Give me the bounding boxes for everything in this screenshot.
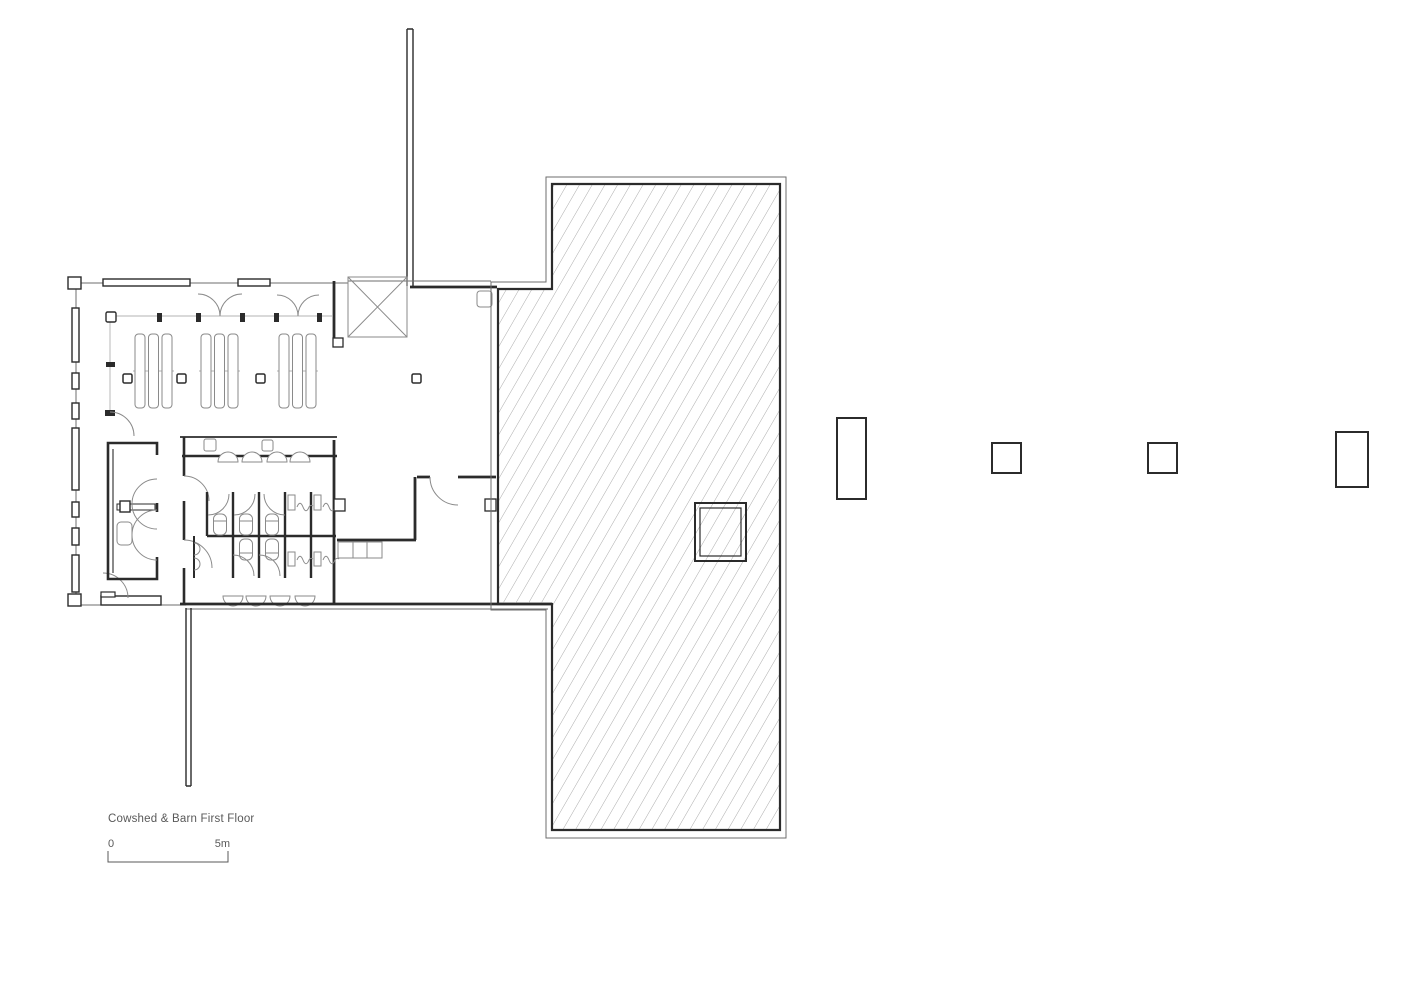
floor-plan-sheet: Cowshed & Barn First Floor 0 5m xyxy=(0,0,1416,1000)
flue-wall-top xyxy=(407,29,413,286)
showers-top xyxy=(288,495,339,511)
scale-zero-label: 0 xyxy=(108,838,114,850)
corner-pier xyxy=(68,594,81,606)
post-column-2 xyxy=(992,443,1021,473)
vestibule xyxy=(108,443,157,579)
floor-plan-drawing: Cowshed & Barn First Floor 0 5m xyxy=(0,0,1416,1000)
double-door-swings xyxy=(198,294,319,316)
table-group-2 xyxy=(199,334,240,408)
showers-bottom xyxy=(288,552,339,566)
scale-max-label: 5m xyxy=(215,838,230,850)
shower-curtain-squiggle xyxy=(323,556,339,564)
flue-wall-bottom xyxy=(186,608,191,786)
door-swing-arc xyxy=(184,476,209,501)
title-block: Cowshed & Barn First Floor 0 5m xyxy=(108,813,254,862)
cistern xyxy=(204,439,216,451)
rooflight-x-marker xyxy=(348,277,407,337)
lintel-bars-north xyxy=(103,279,270,286)
freestanding-posts xyxy=(837,418,1368,499)
guide-corner-post xyxy=(106,312,116,322)
basin xyxy=(117,522,132,545)
drawing-title: Cowshed & Barn First Floor xyxy=(108,813,254,825)
post-column-3 xyxy=(1148,443,1177,473)
post-column-4 xyxy=(1336,432,1368,487)
wall-fixture xyxy=(477,291,492,307)
stall-door-swings-top xyxy=(208,494,285,515)
wall-end-cap xyxy=(333,338,343,347)
counter-unit xyxy=(338,542,382,558)
barn-hatched-floor-void xyxy=(498,184,780,830)
cistern xyxy=(262,440,273,451)
table-group-1 xyxy=(133,334,174,408)
scale-bar xyxy=(108,851,228,862)
wc-pans-top xyxy=(214,514,279,535)
post-column-1 xyxy=(837,418,866,499)
barn-void xyxy=(491,177,786,838)
corner-pier xyxy=(68,277,81,289)
toilet-block xyxy=(180,437,339,606)
lobby-door-leaf xyxy=(117,501,155,512)
wall-jamb-stub xyxy=(334,499,345,511)
door-swing-arc xyxy=(430,477,458,505)
table-group-3 xyxy=(277,334,318,408)
